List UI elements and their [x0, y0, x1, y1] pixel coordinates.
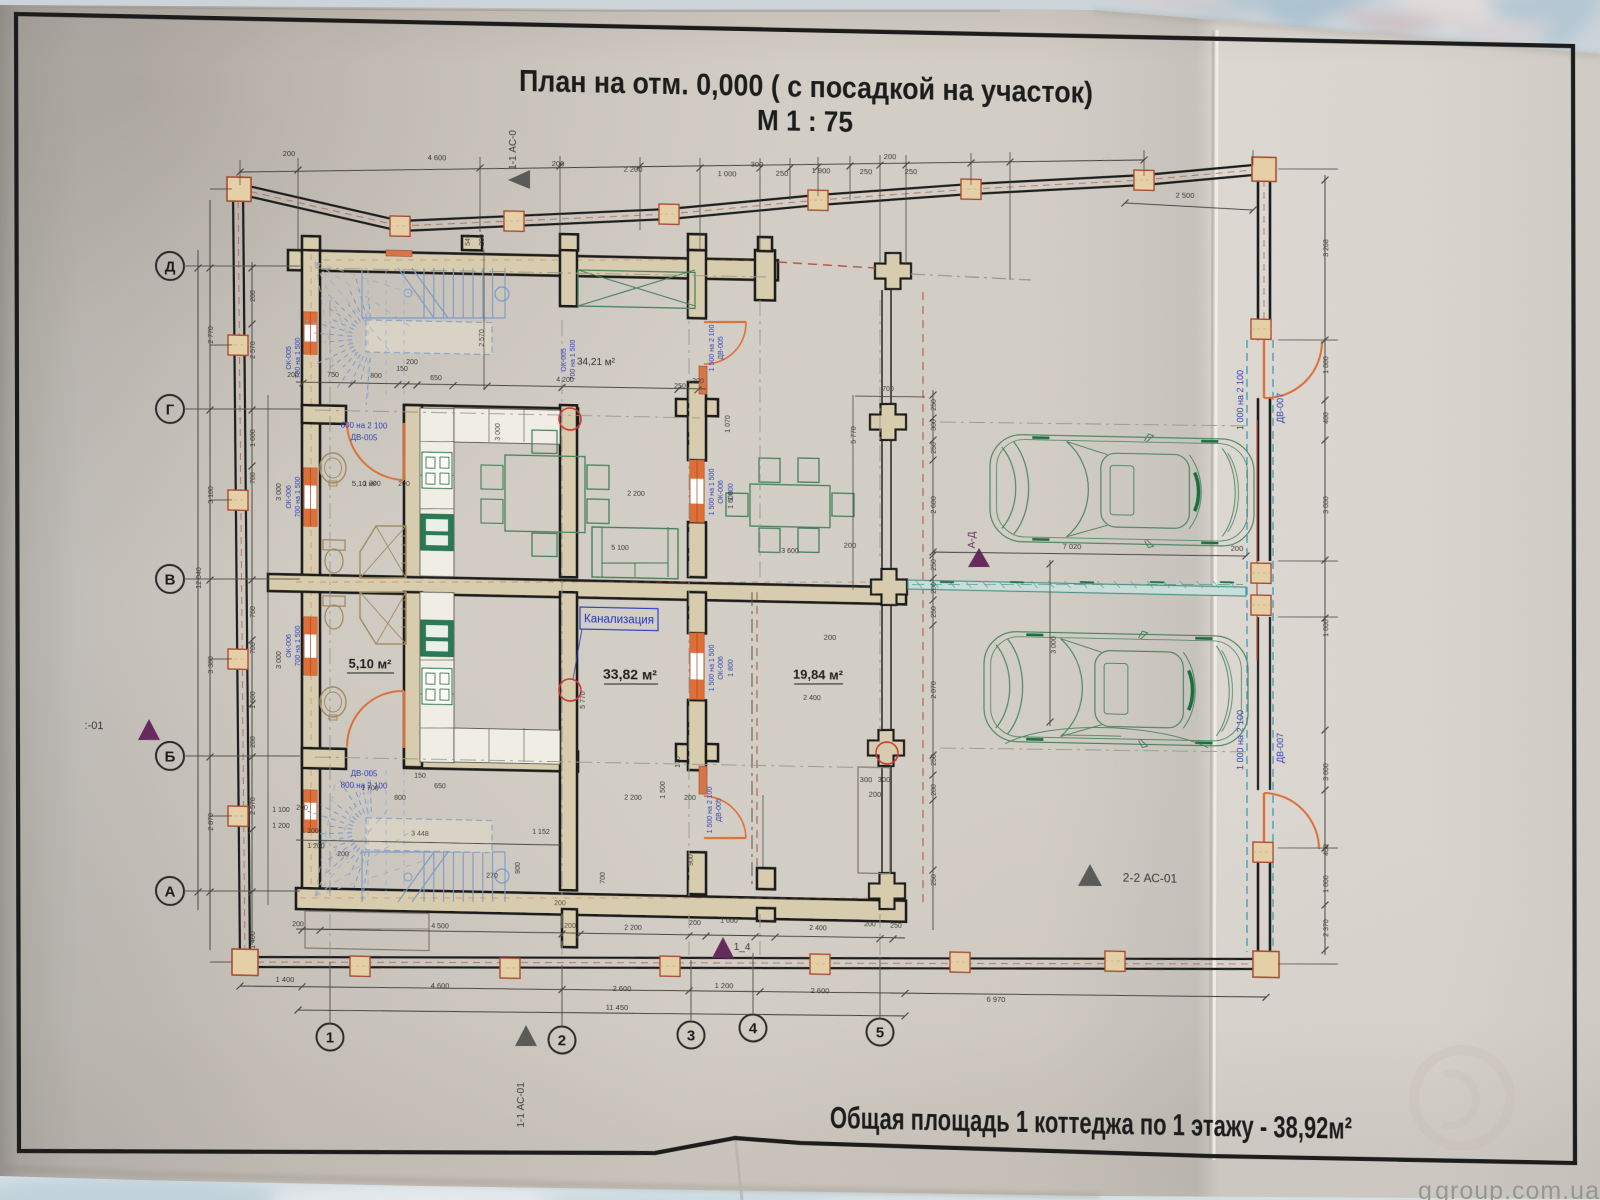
svg-text:ОК-005: ОК-005 [286, 346, 293, 370]
svg-text:3 000: 3 000 [276, 651, 283, 669]
svg-text:250: 250 [931, 559, 938, 571]
svg-text:3 600: 3 600 [781, 548, 799, 555]
svg-text:700 на 1 500: 700 на 1 500 [295, 476, 302, 517]
svg-text:200: 200 [250, 736, 257, 748]
svg-text:ОК-006: ОК-006 [286, 634, 293, 658]
svg-text:2 570: 2 570 [250, 341, 257, 359]
svg-text:4 600: 4 600 [431, 981, 450, 990]
svg-text:Г: Г [166, 401, 175, 418]
svg-text:200: 200 [824, 633, 837, 642]
svg-text:1 600: 1 600 [250, 691, 257, 709]
svg-text:3: 3 [687, 1027, 695, 1044]
svg-text:3 000: 3 000 [1323, 496, 1330, 514]
svg-text:Б: Б [165, 748, 176, 765]
svg-text:200: 200 [564, 923, 576, 930]
svg-text:200: 200 [864, 921, 876, 928]
svg-text:170: 170 [675, 756, 682, 768]
svg-text:200: 200 [337, 851, 349, 858]
svg-text:2: 2 [558, 1032, 566, 1049]
svg-text:2 570: 2 570 [250, 797, 257, 815]
svg-text:ДВ-005: ДВ-005 [351, 769, 378, 779]
svg-text:19,84 м²: 19,84 м² [793, 667, 844, 683]
svg-text:200: 200 [398, 481, 410, 488]
svg-text:1 100: 1 100 [301, 828, 319, 835]
svg-text:1_4: 1_4 [734, 942, 751, 953]
svg-text:200: 200 [931, 784, 938, 796]
svg-text:3 100: 3 100 [208, 486, 215, 504]
svg-text:2 200: 2 200 [624, 165, 643, 174]
svg-text:200: 200 [931, 582, 938, 594]
svg-text:250: 250 [931, 399, 938, 411]
svg-text:А: А [165, 883, 176, 900]
svg-text:1: 1 [326, 1029, 334, 1046]
svg-text:2 500: 2 500 [1176, 191, 1195, 200]
svg-text:150: 150 [414, 773, 426, 780]
svg-text:1 100: 1 100 [272, 807, 290, 814]
svg-text:250: 250 [860, 167, 873, 176]
svg-text:2 600: 2 600 [613, 984, 632, 993]
svg-text:2 370: 2 370 [1323, 919, 1330, 937]
svg-text:2 070: 2 070 [931, 681, 938, 699]
svg-text:ОК-006: ОК-006 [718, 656, 725, 680]
svg-text:200: 200 [283, 149, 296, 158]
svg-text:1 400: 1 400 [276, 975, 295, 984]
svg-text:1 500 на 2 100: 1 500 на 2 100 [709, 324, 716, 371]
svg-text:250: 250 [674, 383, 686, 390]
svg-text:33,82 м²: 33,82 м² [603, 665, 657, 682]
svg-text:4: 4 [749, 1020, 758, 1037]
svg-text:800: 800 [394, 795, 406, 802]
svg-text:1 152: 1 152 [532, 829, 550, 836]
svg-text:1 000: 1 000 [718, 169, 737, 178]
svg-text:2 200: 2 200 [624, 795, 642, 802]
svg-text:300: 300 [931, 419, 938, 431]
svg-text:900: 900 [515, 862, 522, 874]
svg-text:ОК-006: ОК-006 [286, 485, 293, 509]
svg-text:5 100: 5 100 [611, 545, 629, 552]
svg-text:М 1 : 75: М 1 : 75 [757, 105, 853, 139]
svg-text:800 на 2 100: 800 на 2 100 [341, 421, 388, 431]
svg-text:250: 250 [931, 442, 938, 454]
svg-text:1 500 на 1 500: 1 500 на 1 500 [709, 468, 716, 515]
svg-text:270: 270 [486, 873, 498, 880]
svg-text:3 268: 3 268 [1323, 239, 1330, 257]
svg-text:250: 250 [776, 169, 789, 178]
svg-text:250: 250 [890, 923, 902, 930]
svg-text:3 000: 3 000 [495, 423, 502, 441]
svg-text:200: 200 [692, 378, 704, 385]
svg-text:200: 200 [406, 359, 418, 366]
svg-text:ДВ-007: ДВ-007 [1275, 393, 1285, 423]
svg-text:1 200: 1 200 [715, 981, 734, 990]
svg-text:545: 545 [465, 234, 472, 246]
svg-text:1 700: 1 700 [363, 481, 381, 488]
svg-text:700: 700 [250, 472, 257, 484]
svg-text:2 770: 2 770 [208, 326, 215, 344]
svg-text:12 040: 12 040 [196, 567, 203, 589]
svg-text:400: 400 [1323, 412, 1330, 424]
svg-text:200: 200 [844, 541, 857, 550]
svg-text:800: 800 [370, 373, 382, 380]
svg-text:2 600: 2 600 [811, 986, 830, 995]
svg-text:1 500: 1 500 [660, 781, 667, 799]
svg-text:200: 200 [287, 372, 299, 379]
svg-text:1 900: 1 900 [812, 166, 831, 175]
svg-text:ОК-005: ОК-005 [561, 348, 568, 372]
svg-text:ДВ-007: ДВ-007 [1275, 733, 1285, 763]
svg-text:400: 400 [1323, 844, 1330, 856]
svg-text:1 200: 1 200 [307, 843, 325, 850]
svg-text:5,10 м²: 5,10 м² [349, 656, 393, 672]
svg-text:700: 700 [882, 386, 894, 393]
svg-text:200: 200 [869, 790, 882, 799]
svg-text:3 000: 3 000 [276, 483, 283, 501]
svg-text:760: 760 [250, 606, 257, 618]
svg-text:2 200: 2 200 [624, 925, 642, 932]
svg-text:300: 300 [751, 160, 764, 169]
svg-text:Д: Д [165, 258, 176, 275]
svg-text:ДВ-005: ДВ-005 [716, 798, 723, 822]
svg-text:200: 200 [292, 921, 304, 928]
svg-text:1 600: 1 600 [250, 429, 257, 447]
svg-text:3 000: 3 000 [1051, 636, 1058, 654]
svg-text:200: 200 [479, 234, 486, 246]
svg-text:ОК-006: ОК-006 [718, 480, 725, 504]
svg-text:1-1 АС-01: 1-1 АС-01 [516, 1082, 527, 1128]
svg-text:Канализация: Канализация [584, 613, 654, 626]
svg-text:200: 200 [884, 152, 897, 161]
svg-text:ДВ-005: ДВ-005 [718, 336, 725, 360]
svg-text:7 020: 7 020 [1063, 542, 1082, 551]
svg-text:200: 200 [684, 795, 696, 802]
svg-text:В: В [165, 571, 176, 588]
svg-text:650: 650 [434, 783, 446, 790]
svg-text:250: 250 [905, 167, 918, 176]
svg-text:700: 700 [600, 872, 607, 884]
svg-text:2-2 АС-01: 2-2 АС-01 [1123, 870, 1178, 885]
svg-text:4 200: 4 200 [556, 377, 574, 384]
svg-text:650: 650 [430, 375, 442, 382]
svg-text:5 770: 5 770 [851, 426, 858, 444]
svg-text:5 770: 5 770 [580, 691, 587, 709]
svg-text:200: 200 [689, 920, 701, 927]
svg-text:g: g [1418, 1177, 1433, 1200]
svg-text:300: 300 [860, 775, 873, 784]
svg-text:3 448: 3 448 [411, 831, 429, 838]
svg-text:2 570: 2 570 [479, 329, 486, 347]
svg-text:2 400: 2 400 [803, 695, 821, 702]
svg-text:11 450: 11 450 [606, 1003, 628, 1012]
svg-text:4 500: 4 500 [431, 923, 449, 930]
svg-text:1 400: 1 400 [250, 931, 257, 949]
svg-text:2 200: 2 200 [627, 491, 645, 498]
svg-text:4 600: 4 600 [428, 153, 447, 162]
svg-text:2 400: 2 400 [809, 925, 827, 932]
svg-text:700 на 1 500: 700 на 1 500 [570, 339, 577, 380]
svg-text:700 на 1 500: 700 на 1 500 [295, 625, 302, 666]
svg-text:1 200: 1 200 [272, 823, 290, 830]
svg-text:700: 700 [250, 642, 257, 654]
svg-text::-01: :-01 [85, 720, 104, 732]
svg-text:ДВ-005: ДВ-005 [351, 433, 378, 443]
svg-text:900: 900 [688, 854, 695, 866]
svg-text:200: 200 [250, 290, 257, 302]
svg-text:300: 300 [878, 775, 891, 784]
svg-text:1 000: 1 000 [1323, 875, 1330, 893]
svg-text:1 800: 1 800 [728, 659, 735, 677]
svg-text:А-Д: А-Д [967, 531, 978, 548]
svg-text:750: 750 [327, 372, 339, 379]
svg-text:1 070: 1 070 [725, 415, 732, 433]
svg-text:200: 200 [1231, 544, 1244, 553]
svg-text:5: 5 [876, 1024, 884, 1041]
svg-text:150: 150 [396, 366, 408, 373]
svg-text:1-1 АС-0: 1-1 АС-0 [508, 130, 519, 170]
svg-text:1 000: 1 000 [720, 918, 738, 925]
svg-text:34,21 м²: 34,21 м² [577, 357, 616, 369]
svg-text:1 700: 1 700 [361, 785, 379, 792]
svg-text:1 000 на 2 100: 1 000 на 2 100 [1235, 710, 1245, 770]
svg-text:1 500 на 1 500: 1 500 на 1 500 [709, 644, 716, 691]
svg-text:200: 200 [296, 805, 308, 812]
svg-text:2 600: 2 600 [931, 496, 938, 514]
svg-text:6 970: 6 970 [987, 995, 1006, 1004]
svg-text:1 000 на 2 100: 1 000 на 2 100 [1235, 370, 1245, 430]
svg-text:1 500 на 2 100: 1 500 на 2 100 [707, 786, 714, 833]
svg-text:1 000: 1 000 [1323, 356, 1330, 374]
svg-text:1 000: 1 000 [1323, 619, 1330, 637]
svg-text:200: 200 [554, 900, 566, 907]
svg-text:group.com.ua: group.com.ua [1435, 1177, 1600, 1200]
svg-text:1 600: 1 600 [728, 491, 735, 509]
svg-text:250: 250 [931, 874, 938, 886]
svg-text:250: 250 [931, 606, 938, 618]
svg-text:3 000: 3 000 [1323, 763, 1330, 781]
